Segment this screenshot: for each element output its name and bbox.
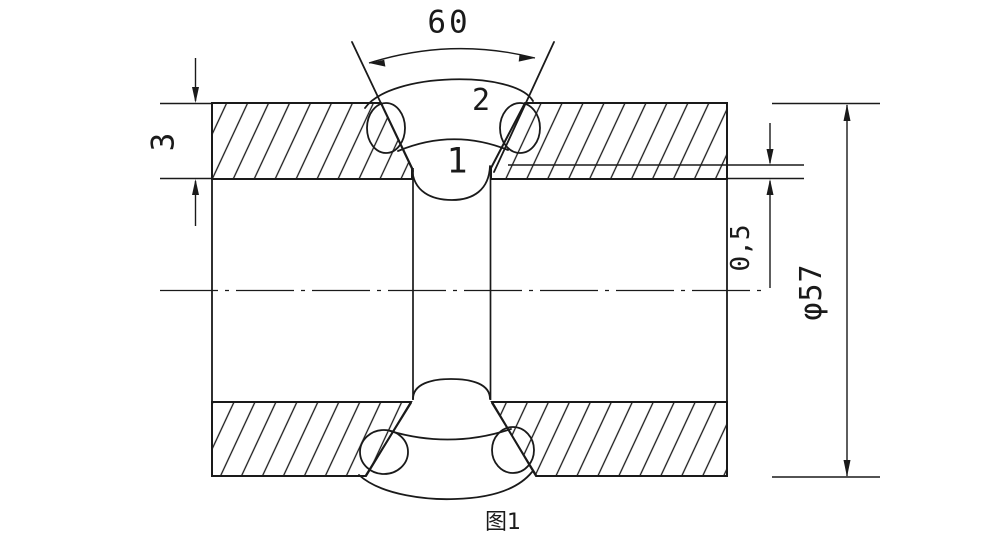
arrowhead-down bbox=[192, 87, 199, 103]
arrowhead-up bbox=[844, 104, 851, 121]
weld-seam-bore-edges bbox=[413, 166, 491, 400]
root-gap-value: 0,5 bbox=[728, 225, 754, 272]
arrowhead-up bbox=[192, 179, 199, 195]
pipe-diameter-value: φ57 bbox=[797, 263, 827, 320]
top-wall-left bbox=[212, 103, 412, 179]
weld-pass-1-label: 1 bbox=[446, 145, 467, 180]
cap-bead-outline-bottom bbox=[359, 472, 532, 499]
bottom-wall-left bbox=[212, 402, 411, 476]
arrowhead-up bbox=[767, 179, 774, 195]
root-bead-bulge-bottom bbox=[413, 379, 490, 399]
weld-pass-2-label: 2 bbox=[472, 86, 490, 116]
weld-joint-cross-section-diagram bbox=[0, 0, 1005, 540]
pass-boundary-arc-bottom bbox=[390, 429, 511, 440]
figure-caption: 图1 bbox=[485, 512, 521, 534]
dimension-groove-angle bbox=[369, 49, 535, 67]
arrowhead-down bbox=[844, 460, 851, 477]
groove-angle-value: 60 bbox=[427, 8, 470, 39]
wall-thickness-value: 3 bbox=[149, 133, 180, 152]
top-wall-right bbox=[491, 103, 727, 179]
arrowhead-down bbox=[767, 149, 774, 165]
pipe-wall-sections bbox=[212, 103, 727, 476]
drawing-canvas: 60 2 1 3 0,5 φ57 图1 bbox=[0, 0, 1005, 540]
bottom-wall-right bbox=[492, 402, 727, 476]
angle-dimension-arc bbox=[369, 49, 535, 63]
